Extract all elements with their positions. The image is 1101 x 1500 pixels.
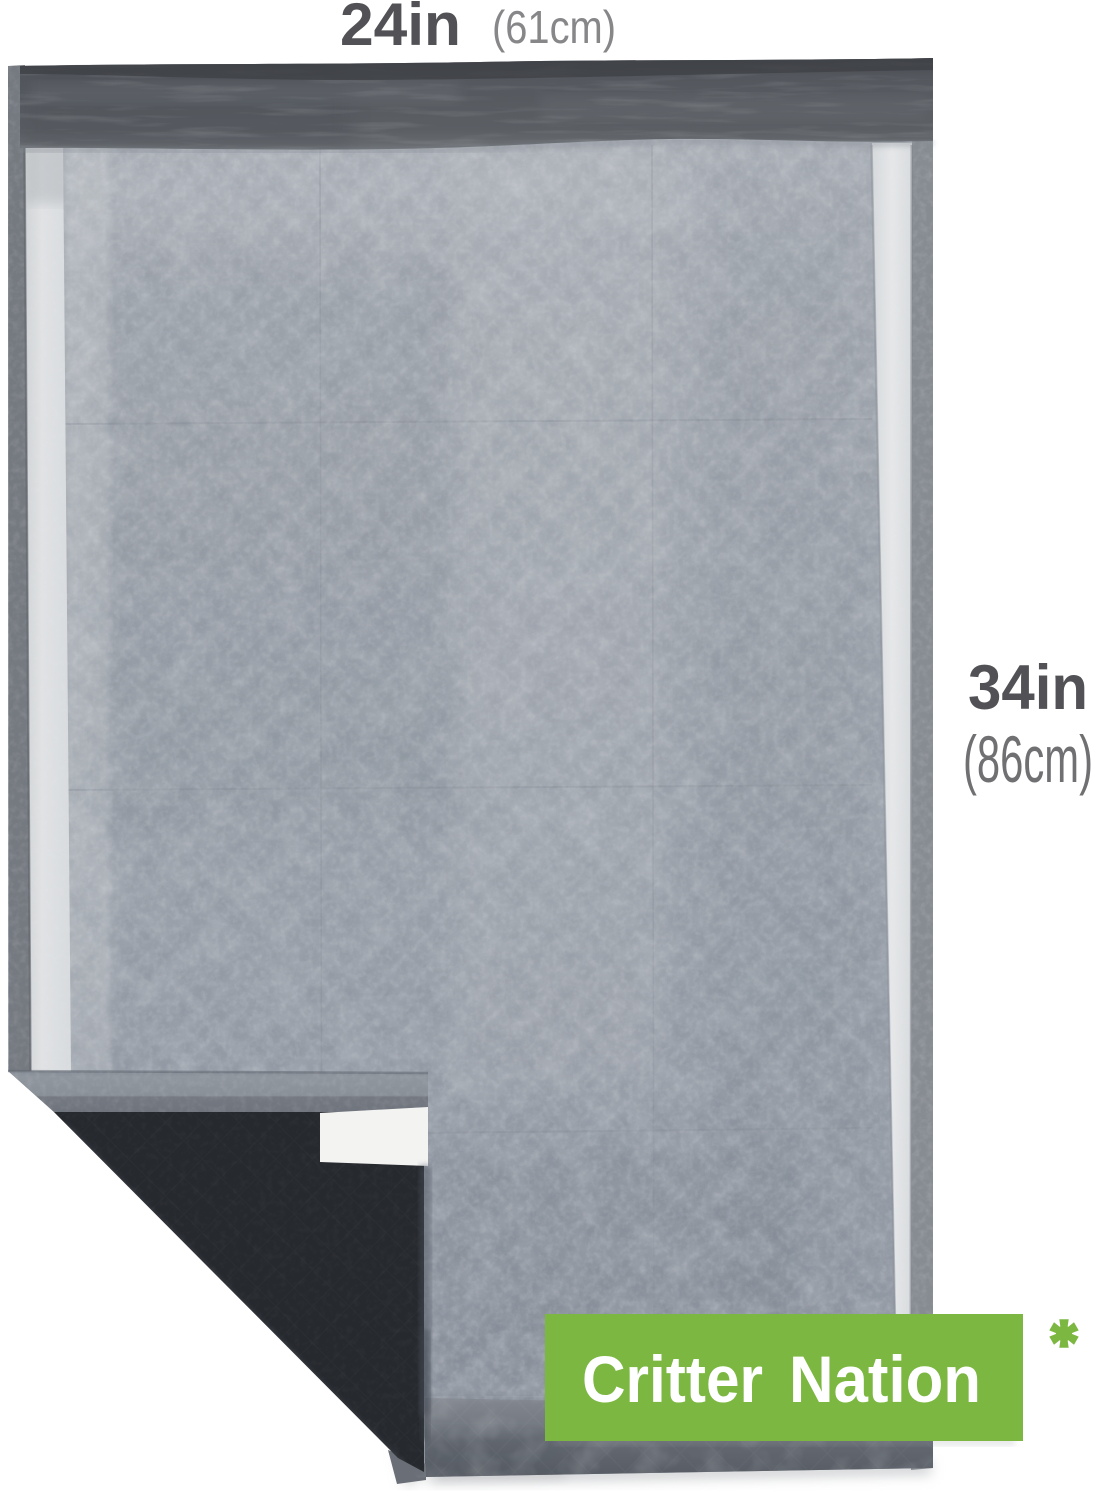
svg-text:Critter: Critter xyxy=(582,1342,763,1416)
svg-text:(86cm): (86cm) xyxy=(963,722,1093,796)
svg-text:(61cm): (61cm) xyxy=(492,1,616,53)
svg-text:24in: 24in xyxy=(340,0,461,58)
svg-text:34in: 34in xyxy=(968,653,1088,723)
svg-text:Nation: Nation xyxy=(789,1342,981,1416)
